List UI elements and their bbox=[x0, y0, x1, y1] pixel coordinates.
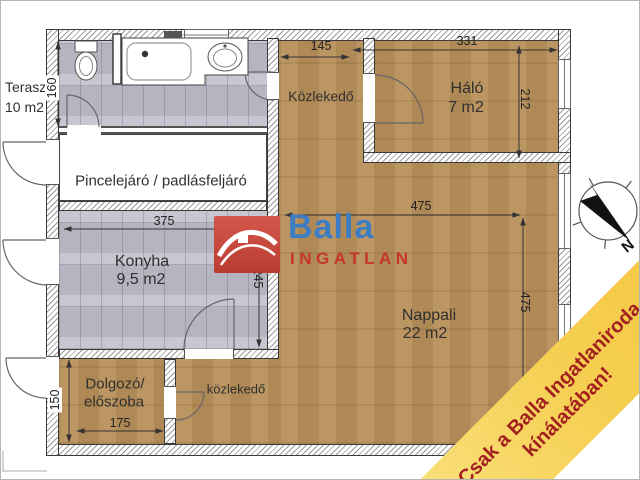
floorplan-canvas: N Terasz 10 m2 Pincelejáró / padlásfeljá… bbox=[0, 0, 640, 480]
balla-logo-house-icon bbox=[214, 216, 280, 273]
door-opening bbox=[267, 72, 279, 100]
door-opening bbox=[67, 125, 101, 135]
room-label-konyha: Konyha bbox=[115, 253, 169, 271]
door-opening bbox=[46, 238, 59, 285]
wall-konyha-eloszoba bbox=[59, 349, 279, 359]
door-opening bbox=[46, 139, 59, 185]
dimension-label: 475 bbox=[411, 199, 432, 213]
room-label-pincelejaro: Pincelejáró / padlásfeljáró bbox=[75, 173, 247, 190]
dimension-label: 475 bbox=[518, 292, 532, 313]
door-opening bbox=[184, 349, 234, 359]
room-area-halo: 7 m2 bbox=[448, 99, 484, 117]
room-label-terasz: Terasz 10 m2 bbox=[5, 77, 46, 118]
dimension-label: 150 bbox=[48, 388, 62, 413]
wall-pince-konyha bbox=[59, 201, 267, 211]
room-label-kozlekedo-felso: Közlekedő bbox=[288, 88, 353, 104]
brand-subtitle: INGATLAN bbox=[290, 249, 413, 269]
window bbox=[558, 59, 571, 109]
window bbox=[558, 173, 571, 249]
door-opening bbox=[363, 73, 375, 123]
room-label-kozlekedo-also: közlekedő bbox=[207, 382, 266, 397]
room-label-eloszoba: előszoba bbox=[84, 394, 144, 411]
dimension-label: 175 bbox=[110, 416, 131, 430]
balla-logo: Balla INGATLAN bbox=[214, 216, 464, 274]
north-label: N bbox=[619, 236, 638, 256]
room-label-halo: Háló bbox=[451, 80, 484, 98]
dimension-label: 160 bbox=[45, 76, 59, 101]
dimension-label: 375 bbox=[154, 214, 175, 228]
floor-furdoszoba bbox=[59, 38, 267, 128]
room-label-nappali: Nappali bbox=[402, 307, 456, 325]
door-opening bbox=[164, 386, 176, 419]
dimension-label: 331 bbox=[457, 34, 478, 48]
brand-name: Balla bbox=[288, 208, 374, 247]
terrace-boundary-line bbox=[3, 451, 47, 472]
dimension-label: 212 bbox=[518, 89, 532, 110]
wall-top bbox=[46, 29, 571, 41]
dimension-label: 145 bbox=[311, 39, 332, 53]
room-label-dolgozo: Dolgozó/ bbox=[85, 376, 144, 393]
window bbox=[184, 29, 229, 41]
room-area-konyha: 9,5 m2 bbox=[117, 271, 166, 289]
north-arrow-icon: N bbox=[573, 178, 638, 256]
floor-pincelejaro bbox=[59, 134, 267, 201]
wall-halo-nappali bbox=[363, 152, 571, 163]
room-area-nappali: 22 m2 bbox=[403, 325, 447, 343]
